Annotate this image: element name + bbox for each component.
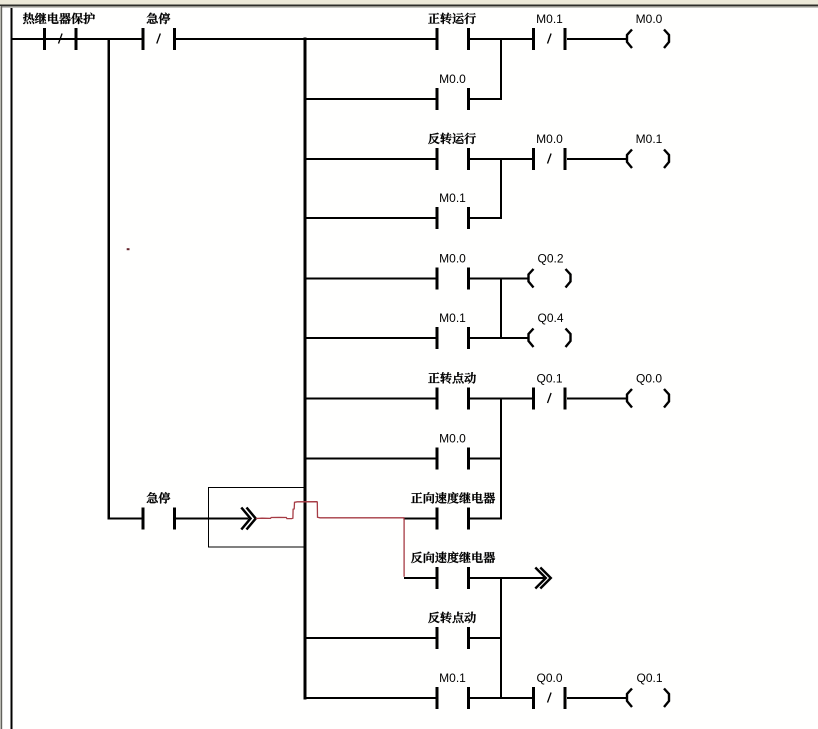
svg-text:Q0.0: Q0.0	[536, 671, 562, 685]
svg-text:Q0.1: Q0.1	[536, 372, 562, 386]
svg-text:M0.0: M0.0	[439, 252, 466, 266]
svg-text:M0.0: M0.0	[636, 12, 663, 26]
svg-text:M0.1: M0.1	[439, 311, 466, 325]
svg-text:Q0.0: Q0.0	[636, 372, 662, 386]
svg-text:M0.1: M0.1	[636, 132, 663, 146]
svg-text:M0.1: M0.1	[536, 12, 563, 26]
svg-text:M0.0: M0.0	[536, 132, 563, 146]
svg-text:M0.1: M0.1	[439, 671, 466, 685]
svg-text:M0.0: M0.0	[439, 72, 466, 86]
svg-text:Q0.4: Q0.4	[537, 311, 563, 325]
svg-text:M0.0: M0.0	[439, 432, 466, 446]
svg-text:Q0.2: Q0.2	[537, 252, 563, 266]
svg-text:Q0.1: Q0.1	[636, 671, 662, 685]
svg-text:M0.1: M0.1	[439, 191, 466, 205]
